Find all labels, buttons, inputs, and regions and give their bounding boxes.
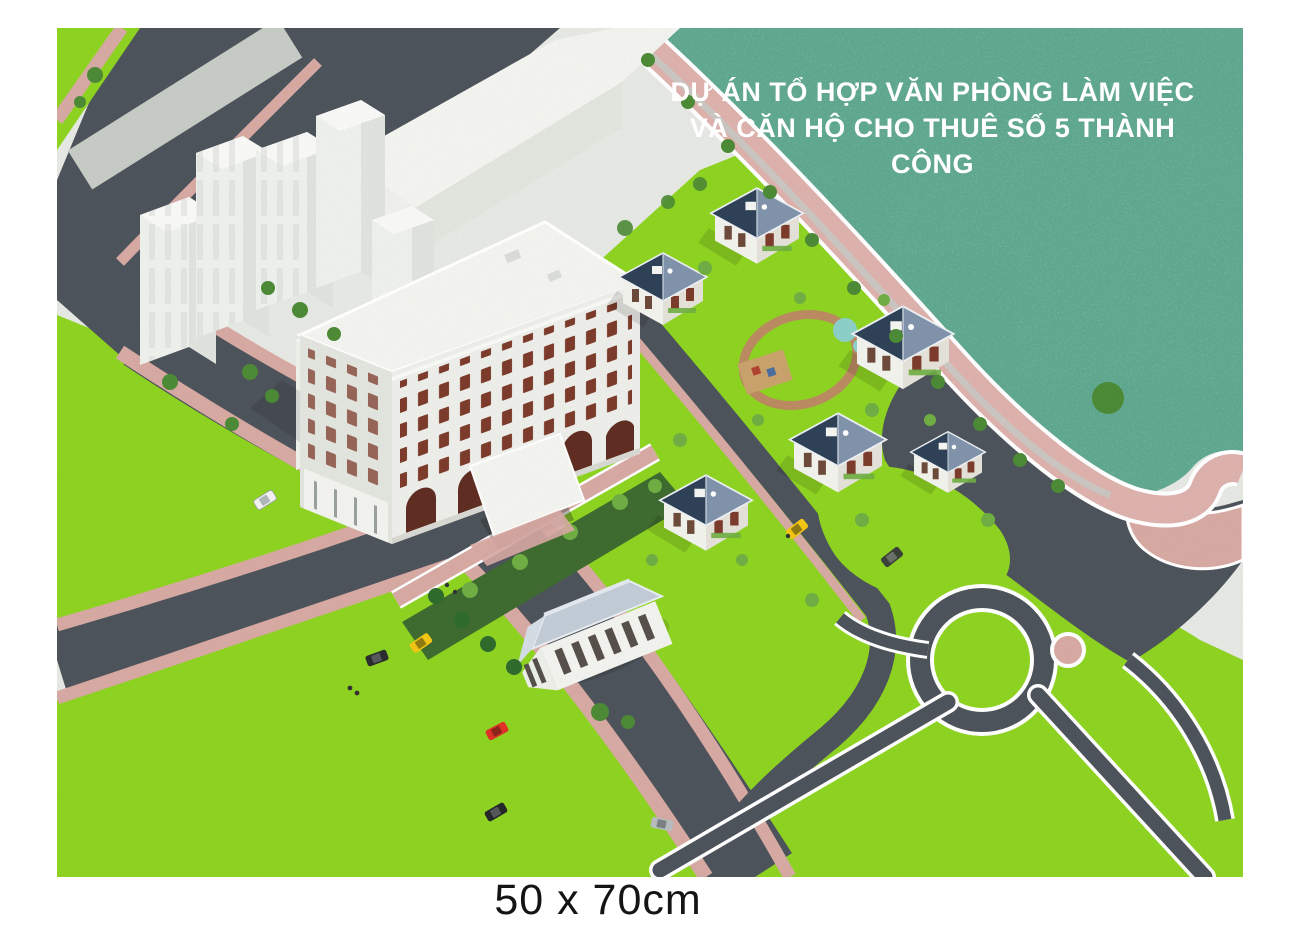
project-title-line1: DỰ ÁN TỔ HỢP VĂN PHÒNG LÀM VIỆC (660, 74, 1205, 110)
project-title-line2: VÀ CĂN HỘ CHO THUÊ SỐ 5 THÀNH CÔNG (660, 110, 1205, 182)
size-caption: 50 x 70cm (0, 876, 1196, 925)
poster-page: DỰ ÁN TỔ HỢP VĂN PHÒNG LÀM VIỆC VÀ CĂN H… (0, 0, 1299, 945)
project-title: DỰ ÁN TỔ HỢP VĂN PHÒNG LÀM VIỆC VÀ CĂN H… (660, 74, 1205, 182)
